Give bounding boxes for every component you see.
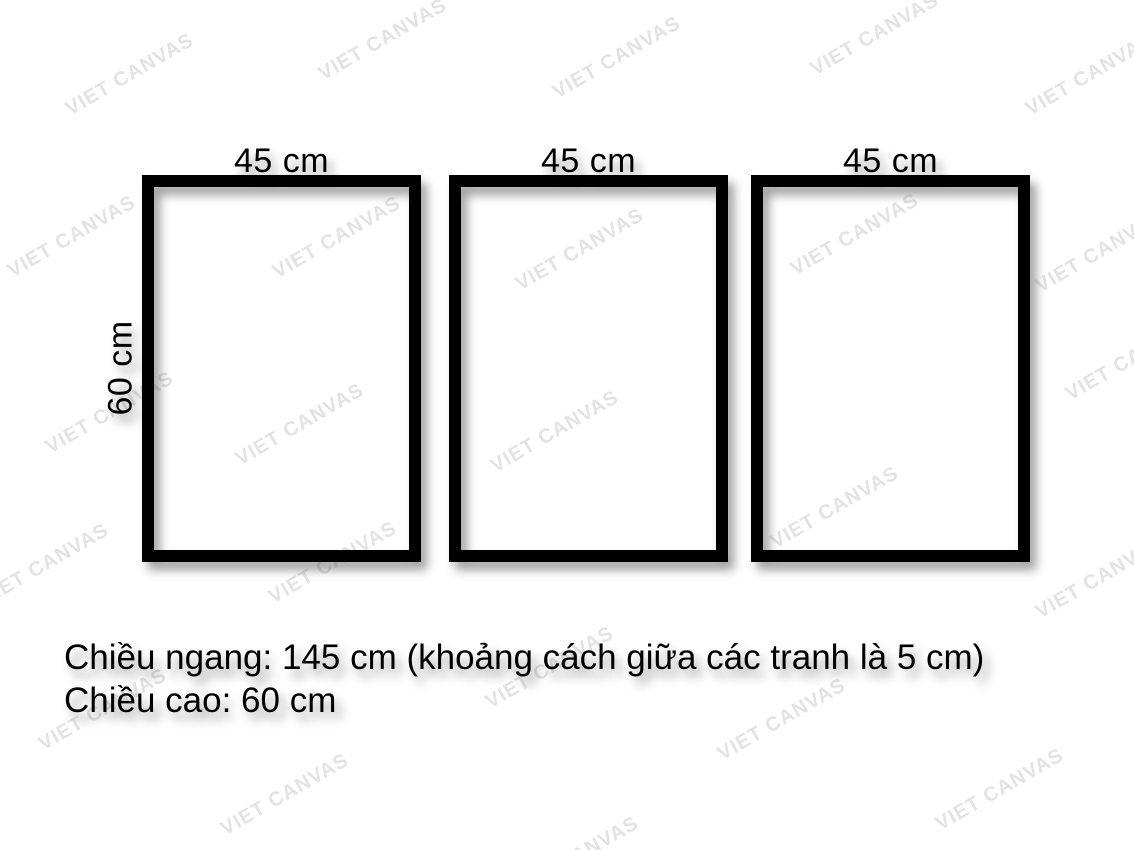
picture-frame-3: 45 cm	[751, 175, 1030, 562]
frame-2-width-label: 45 cm	[449, 141, 728, 181]
frame-1-width-label: 45 cm	[142, 141, 421, 181]
frame-dimension-diagram: VIET CANVASVIET CANVASVIET CANVASVIET CA…	[0, 0, 1134, 850]
height-label: 60 cm	[102, 320, 141, 415]
caption: Chiều ngang: 145 cm (khoảng cách giữa cá…	[64, 636, 984, 722]
picture-frame-2: 45 cm	[449, 175, 728, 562]
caption-line-height: Chiều cao: 60 cm	[64, 679, 984, 722]
frame-3-width-label: 45 cm	[751, 141, 1030, 181]
picture-frame-1: 45 cm	[142, 175, 421, 562]
caption-line-width: Chiều ngang: 145 cm (khoảng cách giữa cá…	[64, 636, 984, 679]
diagram-layer: 45 cm 45 cm 45 cm 60 cm Chiều ngang: 145…	[0, 0, 1134, 850]
